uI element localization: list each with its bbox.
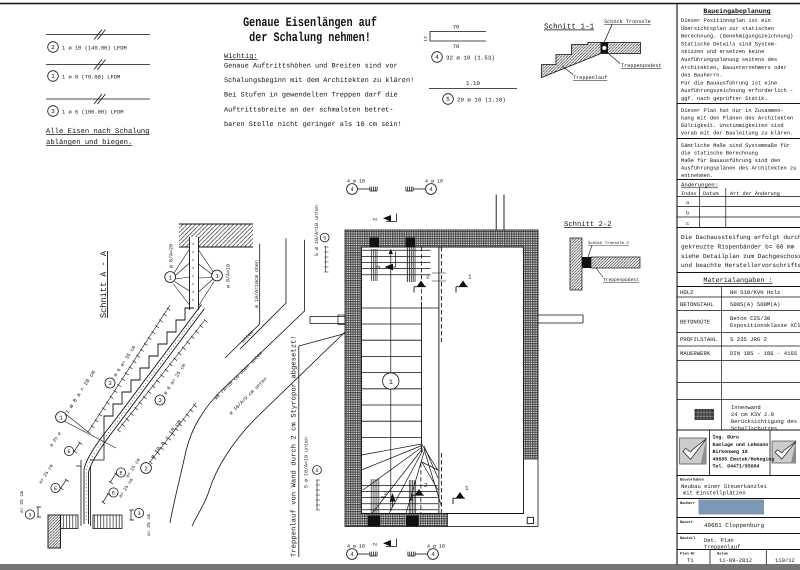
svg-text:1 ø 6 (100.00) LFDM: 1 ø 6 (100.00) LFDM (62, 110, 123, 116)
svg-text:Genaue Eisenlängen auf: Genaue Eisenlängen auf (243, 15, 377, 30)
svg-text:70: 70 (453, 44, 459, 50)
svg-text:E: E (54, 486, 57, 492)
svg-text:2: 2 (372, 543, 379, 546)
svg-text:Berechnung. (Genehmigungszeic: Berechnung. (Genehmigungszeichnung) (681, 34, 793, 40)
svg-text:1: 1 (468, 274, 472, 281)
svg-text:32 ø 10 (1.53): 32 ø 10 (1.53) (446, 55, 495, 62)
svg-text:1: 1 (389, 379, 393, 387)
svg-text:2: 2 (424, 482, 428, 489)
svg-text:der Schalung nehmen!: der Schalung nehmen! (249, 30, 371, 45)
svg-text:1 ø 10 (140.00) LFDM: 1 ø 10 (140.00) LFDM (62, 46, 127, 52)
svg-text:1 ø 8 (70.00) LFDM: 1 ø 8 (70.00) LFDM (62, 75, 120, 81)
svg-text:ablängen und biegen.: ablängen und biegen. (46, 138, 132, 147)
svg-text:die statische Berechnung: die statische Berechnung (681, 150, 758, 156)
svg-text:T1: T1 (687, 557, 694, 564)
svg-text:Beton C25/30: Beton C25/30 (730, 315, 771, 322)
svg-text:2: 2 (426, 274, 430, 281)
svg-text:20 ø 10 (1.10): 20 ø 10 (1.10) (457, 97, 506, 104)
svg-text:a= 25 cm: a= 25 cm (125, 457, 142, 479)
svg-text:ø 8/A=20: ø 8/A=20 (169, 244, 175, 268)
svg-text:Statische Details sind System-: Statische Details sind System- (681, 41, 777, 47)
svg-text:2: 2 (375, 265, 382, 268)
svg-text:4 ø 10: 4 ø 10 (427, 543, 445, 549)
svg-text:BETONSTAHL: BETONSTAHL (680, 301, 714, 308)
svg-text:Materialangaben :: Materialangaben : (703, 277, 772, 285)
svg-text:1: 1 (465, 485, 469, 492)
svg-text:Plan Nr: Plan Nr (680, 552, 695, 557)
svg-text:Treppenpodest: Treppenpodest (621, 63, 661, 69)
svg-text:Sämtliche Maße sind Systemmaße: Sämtliche Maße sind Systemmaße für (681, 143, 790, 149)
svg-text:17: 17 (423, 36, 429, 42)
svg-text:3: 3 (108, 380, 111, 387)
svg-text:Bauvorhaben: Bauvorhaben (680, 478, 704, 483)
svg-text:NH S10/KVH Holz: NH S10/KVH Holz (730, 289, 780, 296)
svg-text:des Bauherrn.: des Bauherrn. (681, 73, 723, 79)
svg-text:Innenwand: Innenwand (731, 404, 761, 411)
svg-text:2: 2 (372, 218, 379, 221)
svg-text:11-09-2012: 11-09-2012 (719, 557, 752, 564)
svg-text:Schnitt A - A: Schnitt A - A (99, 250, 109, 318)
svg-text:E: E (119, 471, 122, 477)
svg-text:Bauort: Bauort (680, 520, 693, 525)
svg-text:Treppenlauf: Treppenlauf (573, 75, 607, 81)
svg-text:3: 3 (51, 108, 55, 115)
svg-text:Birkenweg 10: Birkenweg 10 (713, 449, 748, 455)
svg-text:Gültigkeit. Unstimmigkeiten s: Gültigkeit. Unstimmigkeiten sind (681, 123, 784, 129)
svg-text:Berücksichtigung des: Berücksichtigung des (731, 418, 797, 425)
svg-text:Maße für Bauausführung sind de: Maße für Bauausführung sind den (681, 158, 780, 164)
svg-text:HOLZ: HOLZ (680, 289, 694, 296)
svg-text:Baueingabeplanung: Baueingabeplanung (703, 8, 770, 15)
svg-text:Ausführungsplanung seitens des: Ausführungsplanung seitens des (681, 57, 777, 63)
svg-text:Schnitt 1-1: Schnitt 1-1 (544, 23, 595, 32)
svg-text:4: 4 (431, 551, 435, 558)
svg-text:Datum: Datum (703, 191, 719, 197)
svg-text:1: 1 (168, 274, 172, 281)
svg-text:Bei Stufen in gewendelten Trep: Bei Stufen in gewendelten Treppen darf d… (224, 92, 398, 100)
svg-text:Treppenpodest: Treppenpodest (603, 277, 639, 283)
svg-text:Dieser Plan hat nur in Zusamme: Dieser Plan hat nur in Zusammen- (681, 108, 784, 114)
svg-text:Ausführungsplänen des Architek: Ausführungsplänen des Architekten zu (681, 165, 796, 171)
svg-text:Änderungen:: Änderungen: (681, 182, 718, 189)
svg-text:1 ø 8 a = 20 cm: 1 ø 8 a = 20 cm (64, 369, 98, 416)
svg-text:BETONGÜTE: BETONGÜTE (680, 319, 711, 326)
svg-text:Alle Eisen nach Schalung: Alle Eisen nach Schalung (46, 127, 150, 136)
svg-text:3: 3 (137, 511, 140, 517)
svg-text:mit Einstellplätzen: mit Einstellplätzen (683, 490, 746, 497)
svg-text:4 ø 10: 4 ø 10 (425, 178, 443, 184)
svg-text:Kamlage und Lehmann: Kamlage und Lehmann (713, 442, 769, 448)
svg-text:4 ø 10: 4 ø 10 (347, 543, 365, 549)
svg-text:Übersichtsplan zur statischen: Übersichtsplan zur statischen (681, 25, 774, 32)
svg-text:Bauherr: Bauherr (680, 501, 695, 506)
svg-text:Genaue Auftrittshöhen und Brei: Genaue Auftrittshöhen und Breiten sind v… (224, 63, 398, 71)
svg-text:unten: unten (240, 330, 255, 345)
svg-text:E: E (67, 449, 70, 455)
svg-text:4: 4 (429, 186, 433, 193)
svg-text:a= 25 cm: a= 25 cm (118, 477, 135, 499)
svg-text:ø 10/A=10cm oben: ø 10/A=10cm oben (254, 260, 260, 308)
svg-text:siehe Detailplan zum Dachgesch: siehe Detailplan zum Dachgeschoss (681, 253, 800, 260)
svg-text:4 ø 10: 4 ø 10 (347, 178, 365, 184)
svg-text:4: 4 (350, 186, 354, 193)
svg-text:5 ø 10/A=10 unten: 5 ø 10/A=10 unten (304, 437, 310, 488)
svg-text:49661 Cloppenburg: 49661 Cloppenburg (704, 522, 765, 529)
svg-text:Schöck Tronsole 2: Schöck Tronsole 2 (588, 241, 629, 246)
svg-text:Dieser Positionsplan ist ein: Dieser Positionsplan ist ein (681, 18, 771, 24)
svg-text:Ausführungszeichnung erforderl: Ausführungszeichnung erforderlich - (681, 88, 793, 94)
svg-text:5: 5 (315, 468, 318, 474)
svg-text:Auftrittsbreite an der schmals: Auftrittsbreite an der schmalsten betret… (224, 106, 394, 114)
svg-text:PROFILSTAHL: PROFILSTAHL (680, 336, 717, 343)
svg-text:49685 Emstek/Hoheging: 49685 Emstek/Hoheging (713, 456, 775, 462)
svg-text:ø 8/A=10: ø 8/A=10 (226, 264, 232, 288)
svg-text:4: 4 (350, 551, 354, 558)
svg-text:2: 2 (144, 465, 148, 472)
svg-text:Expositionsklasse XC1: Expositionsklasse XC1 (730, 322, 800, 329)
svg-text:a: a (686, 200, 689, 206)
svg-text:Schalungsbeginn mit dem Archit: Schalungsbeginn mit dem Architekten zu k… (224, 77, 414, 85)
svg-text:Treppenlauf von Wand durch 2 c: Treppenlauf von Wand durch 2 cm Styropor… (290, 335, 299, 557)
svg-text:Tel. 04471/85884: Tel. 04471/85884 (713, 464, 760, 470)
svg-text:a= 25 cm: a= 25 cm (19, 491, 25, 513)
svg-text:c: c (686, 221, 689, 227)
svg-text:entnehmen.: entnehmen. (681, 173, 713, 179)
svg-text:1: 1 (215, 273, 219, 280)
svg-text:5: 5 (446, 96, 450, 103)
svg-text:1.10: 1.10 (466, 80, 480, 87)
svg-text:Index: Index (681, 191, 697, 197)
svg-text:MAUERWERK: MAUERWERK (680, 350, 711, 357)
svg-text:ø 6 a= 25 cm: ø 6 a= 25 cm (163, 363, 188, 396)
svg-text:1: 1 (59, 414, 63, 421)
svg-text:70: 70 (453, 25, 459, 31)
svg-text:und beachte Herstellervorschri: und beachte Herstellervorschriften (681, 262, 800, 269)
svg-text:24 cm KSV 2.0: 24 cm KSV 2.0 (731, 411, 774, 418)
svg-text:Datum: Datum (717, 552, 729, 557)
svg-text:S 235 JRG 2: S 235 JRG 2 (730, 336, 767, 343)
svg-text:4: 4 (435, 54, 439, 61)
svg-text:1: 1 (51, 73, 55, 80)
svg-text:gekreuzte Rispenbänder b= 60 m: gekreuzte Rispenbänder b= 60 mm (681, 243, 795, 250)
svg-text:a= 25 cm: a= 25 cm (38, 463, 55, 485)
svg-text:Für die Bauausführung ist eine: Für die Bauausführung ist eine (681, 80, 777, 86)
svg-text:500S(A) 500M(A): 500S(A) 500M(A) (730, 301, 780, 308)
svg-text:vorab mit der Bauleitung zu kl: vorab mit der Bauleitung zu klären. (681, 130, 793, 136)
svg-text:DIN 105 - 106 - 4165: DIN 105 - 106 - 4165 (730, 350, 797, 357)
svg-text:Ing. Büro: Ing. Büro (713, 435, 739, 441)
svg-text:2: 2 (51, 44, 55, 51)
svg-text:b: b (686, 211, 689, 217)
svg-text:hang mit den Plänen des Archit: hang mit den Plänen des Architekten (681, 115, 793, 121)
svg-text:2: 2 (384, 491, 387, 497)
svg-text:Die Dachaussteifung erfolgt du: Die Dachaussteifung erfolgt durch (681, 234, 800, 241)
svg-text:3: 3 (28, 513, 31, 519)
svg-text:baren Stelle nicht geringer al: baren Stelle nicht geringer als 10 cm se… (224, 121, 402, 129)
svg-text:E: E (112, 491, 115, 497)
svg-text:Schnitt 2-2: Schnitt 2-2 (564, 220, 611, 229)
svg-text:Bauteil: Bauteil (680, 536, 696, 541)
svg-text:Art der Änderung: Art der Änderung (730, 190, 780, 197)
svg-text:5 ø 10/A=10 unten: 5 ø 10/A=10 unten (314, 205, 320, 256)
svg-text:Schöck Tronsole: Schöck Tronsole (604, 19, 651, 25)
svg-text:a= 25 cm: a= 25 cm (146, 514, 152, 536)
svg-text:Wichtig:: Wichtig: (224, 52, 258, 61)
svg-text:ø 10 a = 10 cm: ø 10 a = 10 cm (149, 418, 183, 460)
svg-text:ggf. nach geprüfter Statik.: ggf. nach geprüfter Statik. (681, 96, 768, 102)
svg-text:119/12: 119/12 (775, 557, 795, 564)
svg-text:ø8 /A=20 cm oben unten: ø8 /A=20 cm oben unten (213, 350, 264, 401)
svg-text:3: 3 (158, 397, 161, 404)
svg-text:skizzen und ersetzen keine: skizzen und ersetzen keine (681, 49, 764, 55)
svg-text:ø 25 ø: ø 25 ø (49, 431, 63, 448)
svg-text:5: 5 (323, 236, 326, 242)
svg-text:Architekten, Bauunternehmers o: Architekten, Bauunternehmers oder (681, 65, 787, 71)
